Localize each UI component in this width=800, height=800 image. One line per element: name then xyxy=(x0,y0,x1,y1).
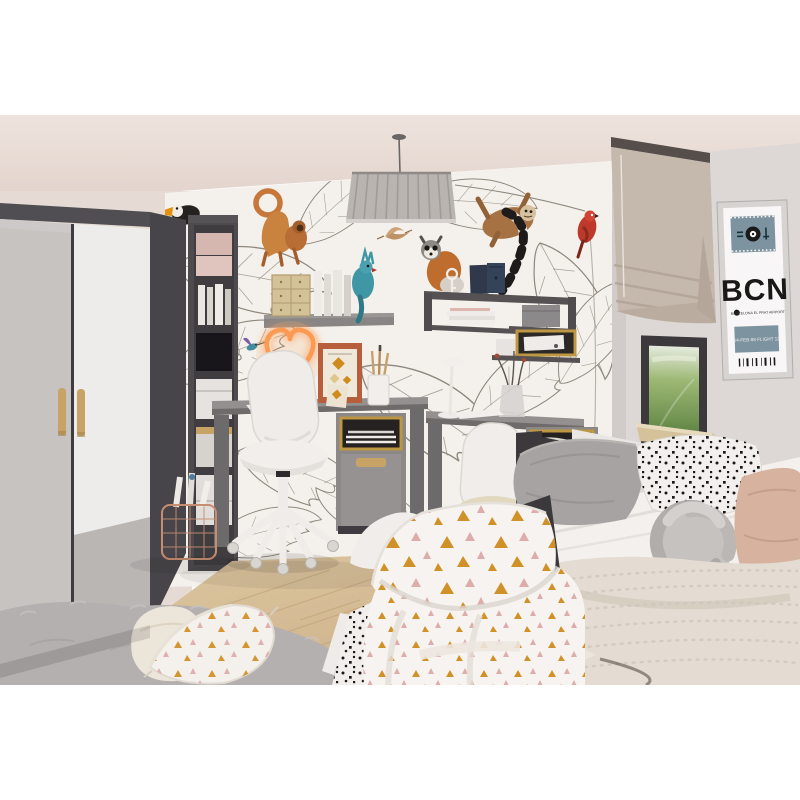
photo-tint xyxy=(0,115,800,685)
page: BCN BARCELONA EL PRAT AIRPORT 14-FEB-88 … xyxy=(0,0,800,800)
room-photo: BCN BARCELONA EL PRAT AIRPORT 14-FEB-88 … xyxy=(0,115,800,685)
